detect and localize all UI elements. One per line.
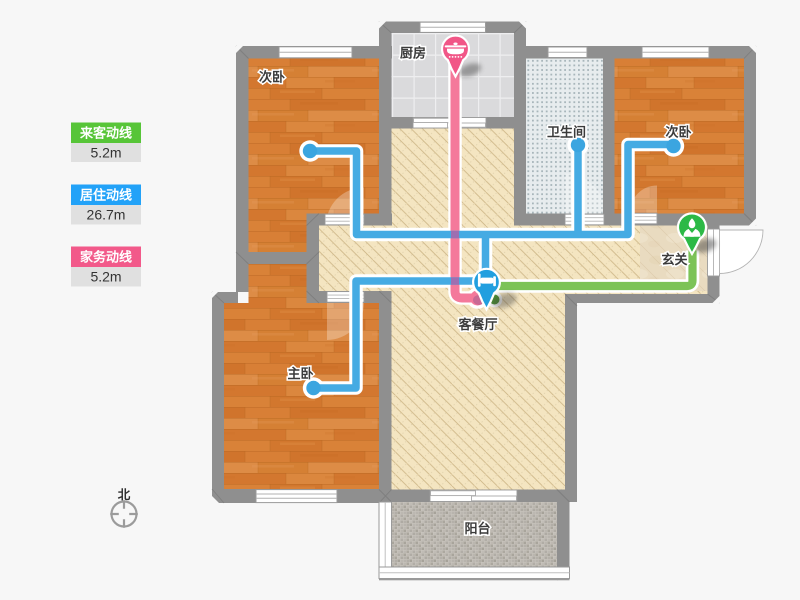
svg-text:厨房: 厨房	[400, 46, 426, 61]
svg-text:5.2m: 5.2m	[90, 145, 121, 161]
svg-text:主卧: 主卧	[287, 366, 313, 381]
svg-text:客餐厅: 客餐厅	[458, 317, 497, 332]
svg-text:来客动线: 来客动线	[79, 126, 132, 141]
svg-text:居住动线: 居住动线	[80, 188, 132, 203]
svg-text:玄关: 玄关	[661, 252, 687, 267]
svg-text:北: 北	[118, 487, 131, 502]
svg-text:次卧: 次卧	[259, 70, 285, 85]
svg-text:阳台: 阳台	[464, 521, 490, 536]
svg-text:26.7m: 26.7m	[87, 207, 126, 223]
svg-text:次卧: 次卧	[665, 125, 691, 140]
svg-text:5.2m: 5.2m	[90, 269, 121, 285]
svg-text:卫生间: 卫生间	[547, 125, 586, 140]
svg-text:家务动线: 家务动线	[80, 250, 132, 265]
